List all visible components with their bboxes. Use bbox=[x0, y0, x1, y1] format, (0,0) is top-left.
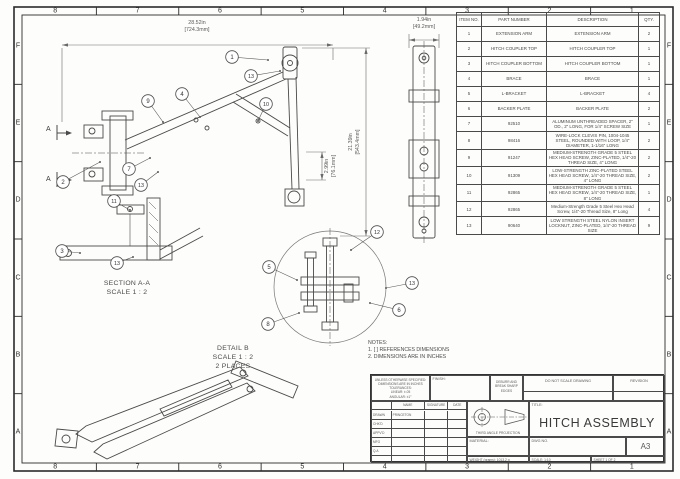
table-row: 1292865Medium-Strength Grade 5 Steel Hex… bbox=[457, 202, 660, 217]
balloon-13: 13 bbox=[111, 256, 134, 269]
bom-cell-desc: LOW-STRENGTH ZINC-PLATED STEEL HEX HEAD … bbox=[547, 167, 639, 185]
sheet-cell: SHEET 1 OF 2 bbox=[591, 456, 665, 463]
bom-cell-desc: HITCH COUPLER BOTTOM bbox=[547, 57, 639, 72]
bom-cell-desc: BACKER PLATE bbox=[547, 102, 639, 117]
detail-view bbox=[274, 228, 386, 346]
bom-cell-desc: MEDIUM-STRENGTH GRADE 5 STEEL HEX HEAD S… bbox=[547, 149, 639, 167]
notes-title: NOTES: bbox=[368, 340, 449, 347]
bom-cell-item: 7 bbox=[457, 117, 482, 132]
signoff-cell bbox=[425, 429, 449, 438]
balloon-3: 3 bbox=[56, 245, 81, 258]
bom-cell-desc: Medium-Strength Grade 5 Steel Hex Head S… bbox=[547, 202, 639, 217]
grid-row-label: D bbox=[666, 197, 671, 204]
grid-column-label: 3 bbox=[465, 464, 469, 471]
note-2: 2. DIMENSIONS ARE IN INCHES bbox=[368, 354, 449, 361]
table-row: 991247MEDIUM-STRENGTH GRADE 5 STEEL HEX … bbox=[457, 149, 660, 167]
grid-column-label: 5 bbox=[300, 8, 304, 15]
signoff-cell bbox=[392, 447, 425, 456]
bom-cell-qty: 1 bbox=[639, 42, 660, 57]
bom-cell-qty: 2 bbox=[639, 27, 660, 42]
table-row: 1390640LOW STRENGTH STEEL NYLON INSERT L… bbox=[457, 217, 660, 235]
balloon-10: 10 bbox=[257, 98, 272, 122]
table-row: 3HITCH COUPLER BOTTOMHITCH COUPLER BOTTO… bbox=[457, 57, 660, 72]
signoff-cell bbox=[372, 456, 392, 463]
third-angle-projection-icon bbox=[471, 405, 527, 429]
grid-row-label: F bbox=[16, 42, 20, 49]
bom-cell-desc: BRACE bbox=[547, 72, 639, 87]
grid-row-label: F bbox=[667, 42, 671, 49]
signoff-cell: APPV'D bbox=[372, 429, 392, 438]
grid-row-label: E bbox=[667, 120, 672, 127]
drawing-title: HITCH ASSEMBLY bbox=[530, 410, 664, 436]
table-row: 6BACKER PLATEBACKER PLATE2 bbox=[457, 102, 660, 117]
signoff-cell bbox=[425, 447, 449, 456]
dimension-overall-width: 28.52in[724.3mm] bbox=[184, 20, 209, 34]
bom-cell-desc: L-BRACKET bbox=[547, 87, 639, 102]
bom-cell-desc: WIRE-LOCK CLEVIS PIN, 1004-1045 STEEL, R… bbox=[547, 132, 639, 150]
balloon-6: 6 bbox=[369, 302, 405, 316]
signoff-row: CHK'D bbox=[372, 420, 466, 429]
bom-cell-item: 12 bbox=[457, 202, 482, 217]
signoff-cell bbox=[392, 420, 425, 429]
signoff-cell: PRINCETON bbox=[392, 411, 425, 420]
bom-cell-part: EXTENSION ARM bbox=[482, 27, 547, 42]
signoff-row bbox=[372, 456, 466, 463]
grid-row-label: B bbox=[16, 352, 21, 359]
signoff-cell bbox=[448, 429, 466, 438]
title-cell: TITLE: HITCH ASSEMBLY bbox=[529, 401, 665, 437]
grid-column-label: 7 bbox=[136, 464, 140, 471]
balloon-2: 2 bbox=[57, 161, 101, 188]
balloon-4: 4 bbox=[176, 88, 201, 118]
bom-cell-qty: 1 bbox=[639, 184, 660, 202]
bom-cell-item: 4 bbox=[457, 72, 482, 87]
grid-column-label: 5 bbox=[300, 464, 304, 471]
svg-text:13: 13 bbox=[114, 261, 120, 267]
bom-cell-part: 98416 bbox=[482, 132, 547, 150]
grid-row-label: A bbox=[667, 429, 672, 436]
projection-label: THIRD ANGLE PROJECTION bbox=[468, 431, 528, 435]
scale-cell: SCALE: 1:10 bbox=[529, 456, 591, 463]
grid-column-label: 8 bbox=[53, 8, 57, 15]
signoff-cell bbox=[392, 456, 425, 463]
deburr-note: DEBURR AND BREAK SHARP EDGES bbox=[490, 375, 523, 401]
projection-cell: THIRD ANGLE PROJECTION bbox=[467, 401, 529, 437]
bom-cell-qty: 2 bbox=[639, 149, 660, 167]
bom-cell-qty: 2 bbox=[639, 102, 660, 117]
bom-cell-qty: 2 bbox=[639, 132, 660, 150]
signoff-row: APPV'D bbox=[372, 429, 466, 438]
signoff-table: NAME SIGNATURE DATE DRAWNPRINCETONCHK'DA… bbox=[371, 401, 467, 463]
bom-table: ITEM NO.PART NUMBERDESCRIPTIONQTY. 1EXTE… bbox=[456, 12, 660, 235]
signoff-cell bbox=[448, 447, 466, 456]
bom-cell-item: 10 bbox=[457, 167, 482, 185]
weight-cell: WEIGHT (grams): 1013.2 g bbox=[467, 456, 529, 463]
side-view bbox=[409, 41, 439, 243]
grid-row-label: B bbox=[667, 352, 672, 359]
material-cell: MATERIAL: bbox=[467, 437, 529, 456]
balloon-12: 12 bbox=[350, 226, 383, 251]
grid-row-label: D bbox=[15, 197, 20, 204]
grid-row-label: A bbox=[16, 429, 21, 436]
bom-cell-item: 8 bbox=[457, 132, 482, 150]
title-block: UNLESS OTHERWISE SPECIFIED: DIMENSIONS A… bbox=[370, 374, 664, 462]
signoff-cell bbox=[425, 456, 449, 463]
signoff-header-row: NAME SIGNATURE DATE bbox=[372, 402, 466, 411]
bom-cell-desc: LOW STRENGTH STEEL NYLON INSERT LOCKNUT,… bbox=[547, 217, 639, 235]
balloon-13: 13 bbox=[135, 171, 159, 191]
dimension-overall-height: 21.39in[543.4mm] bbox=[348, 129, 362, 154]
section-view bbox=[60, 198, 203, 260]
detail-view-label: DETAIL BSCALE 1 : 22 PLACES bbox=[213, 345, 254, 371]
do-not-scale-cell: DO NOT SCALE DRAWING bbox=[523, 375, 613, 401]
finish-cell: FINISH: bbox=[430, 375, 490, 401]
bom-cell-qty: 1 bbox=[639, 117, 660, 132]
balloon-13: 13 bbox=[385, 277, 418, 290]
signoff-cell bbox=[425, 420, 449, 429]
signoff-cell bbox=[392, 429, 425, 438]
grid-column-label: 4 bbox=[383, 464, 387, 471]
grid-row-label: C bbox=[15, 274, 20, 281]
signoff-cell bbox=[448, 456, 466, 463]
signoff-cell bbox=[448, 411, 466, 420]
bom-cell-qty: 4 bbox=[639, 202, 660, 217]
signoff-cell bbox=[448, 438, 466, 447]
signoff-row: Q.A bbox=[372, 447, 466, 456]
table-row: 1192865MEDIUM-STRENGTH GRADE 5 STEEL HEX… bbox=[457, 184, 660, 202]
bom-cell-qty: 1 bbox=[639, 57, 660, 72]
table-row: 4BRACEBRACE1 bbox=[457, 72, 660, 87]
svg-text:13: 13 bbox=[138, 183, 144, 189]
dwg-no-cell: DWG NO. bbox=[529, 437, 626, 456]
bom-cell-part: 92865 bbox=[482, 202, 547, 217]
bom-cell-part: BRACE bbox=[482, 72, 547, 87]
bom-header-cell: PART NUMBER bbox=[482, 13, 547, 27]
note-1: 1. [ ] REFERENCES DIMENSIONS bbox=[368, 347, 449, 354]
svg-text:13: 13 bbox=[409, 281, 415, 287]
bom-cell-item: 5 bbox=[457, 87, 482, 102]
bom-cell-part: 91247 bbox=[482, 149, 547, 167]
tolerance-note: UNLESS OTHERWISE SPECIFIED: DIMENSIONS A… bbox=[371, 375, 430, 401]
bom-cell-item: 2 bbox=[457, 42, 482, 57]
balloon-1: 1 bbox=[226, 51, 269, 64]
bom-cell-item: 13 bbox=[457, 217, 482, 235]
grid-column-label: 4 bbox=[383, 8, 387, 15]
dimension-side-width: 1.94in[49.2mm] bbox=[413, 17, 435, 31]
signoff-cell: CHK'D bbox=[372, 420, 392, 429]
signoff-row: DRAWNPRINCETON bbox=[372, 411, 466, 420]
bom-cell-part: 92865 bbox=[482, 184, 547, 202]
signoff-cell bbox=[392, 438, 425, 447]
balloon-8: 8 bbox=[262, 312, 300, 330]
bom-header-cell: DESCRIPTION bbox=[547, 13, 639, 27]
bom-cell-desc: MEDIUM-STRENGTH GRADE 5 STEEL HEX HEAD S… bbox=[547, 184, 639, 202]
grid-row-label: E bbox=[16, 120, 21, 127]
signoff-cell bbox=[425, 438, 449, 447]
signoff-cell bbox=[448, 420, 466, 429]
svg-text:12: 12 bbox=[374, 230, 380, 236]
grid-column-label: 8 bbox=[53, 464, 57, 471]
bom-cell-item: 1 bbox=[457, 27, 482, 42]
drawing-sheet: 11394102713113131213658 8877665544332211… bbox=[0, 0, 680, 479]
table-row: 1091309LOW-STRENGTH ZINC-PLATED STEEL HE… bbox=[457, 167, 660, 185]
table-row: 5L-BRACKETL-BRACKET4 bbox=[457, 87, 660, 102]
bom-cell-qty: 9 bbox=[639, 217, 660, 235]
bom-header-row: ITEM NO.PART NUMBERDESCRIPTIONQTY. bbox=[457, 13, 660, 27]
dimension-hub-height: 2.99in[76.1mm] bbox=[324, 155, 338, 177]
signoff-cell: DRAWN bbox=[372, 411, 392, 420]
bom-cell-qty: 4 bbox=[639, 87, 660, 102]
bom-cell-desc: ALUMINUM UNTHREADED SPACER, 2" OD., 2" L… bbox=[547, 117, 639, 132]
grid-column-label: 2 bbox=[547, 464, 551, 471]
paper-size-cell: A3 bbox=[626, 437, 665, 456]
table-row: 2HITCH COUPLER TOPHITCH COUPLER TOP1 bbox=[457, 42, 660, 57]
bom-cell-item: 3 bbox=[457, 57, 482, 72]
bom-header-cell: ITEM NO. bbox=[457, 13, 482, 27]
balloon-5: 5 bbox=[263, 261, 298, 281]
bom-cell-desc: EXTENSION ARM bbox=[547, 27, 639, 42]
section-view-label: SECTION A-ASCALE 1 : 2 bbox=[104, 280, 150, 298]
bom-cell-qty: 2 bbox=[639, 167, 660, 185]
section-marker-a-bottom: A bbox=[46, 176, 51, 183]
grid-column-label: 1 bbox=[630, 464, 634, 471]
bom-cell-part: 91309 bbox=[482, 167, 547, 185]
notes-block: NOTES: 1. [ ] REFERENCES DIMENSIONS 2. D… bbox=[368, 340, 449, 361]
svg-text:10: 10 bbox=[263, 102, 269, 108]
svg-text:11: 11 bbox=[111, 199, 117, 205]
grid-column-label: 7 bbox=[136, 8, 140, 15]
table-row: 898416WIRE-LOCK CLEVIS PIN, 1004-1045 ST… bbox=[457, 132, 660, 150]
table-row: 1EXTENSION ARMEXTENSION ARM2 bbox=[457, 27, 660, 42]
bom-cell-item: 6 bbox=[457, 102, 482, 117]
signoff-row: MFG bbox=[372, 438, 466, 447]
balloon-9: 9 bbox=[142, 95, 164, 123]
bom-cell-item: 11 bbox=[457, 184, 482, 202]
grid-column-label: 6 bbox=[218, 464, 222, 471]
revision-cell: REVISION bbox=[613, 375, 665, 401]
signoff-cell bbox=[425, 411, 449, 420]
bom-cell-part: HITCH COUPLER BOTTOM bbox=[482, 57, 547, 72]
signoff-cell: MFG bbox=[372, 438, 392, 447]
bom-header-cell: QTY. bbox=[639, 13, 660, 27]
bom-cell-part: BACKER PLATE bbox=[482, 102, 547, 117]
top-view bbox=[72, 47, 304, 206]
balloon-7: 7 bbox=[123, 157, 151, 175]
balloon-11: 11 bbox=[108, 195, 131, 211]
grid-row-label: C bbox=[666, 274, 671, 281]
bom-cell-part: HITCH COUPLER TOP bbox=[482, 42, 547, 57]
bom-cell-part: 92510 bbox=[482, 117, 547, 132]
bom-cell-desc: HITCH COUPLER TOP bbox=[547, 42, 639, 57]
bom-cell-qty: 1 bbox=[639, 72, 660, 87]
bom-cell-item: 9 bbox=[457, 149, 482, 167]
svg-text:13: 13 bbox=[248, 74, 254, 80]
bom-cell-part: L-BRACKET bbox=[482, 87, 547, 102]
section-marker-a-top: A bbox=[46, 126, 51, 133]
table-row: 792510ALUMINUM UNTHREADED SPACER, 2" OD.… bbox=[457, 117, 660, 132]
isometric-view bbox=[55, 361, 298, 459]
grid-column-label: 6 bbox=[218, 8, 222, 15]
signoff-cell: Q.A bbox=[372, 447, 392, 456]
bom-cell-part: 90640 bbox=[482, 217, 547, 235]
